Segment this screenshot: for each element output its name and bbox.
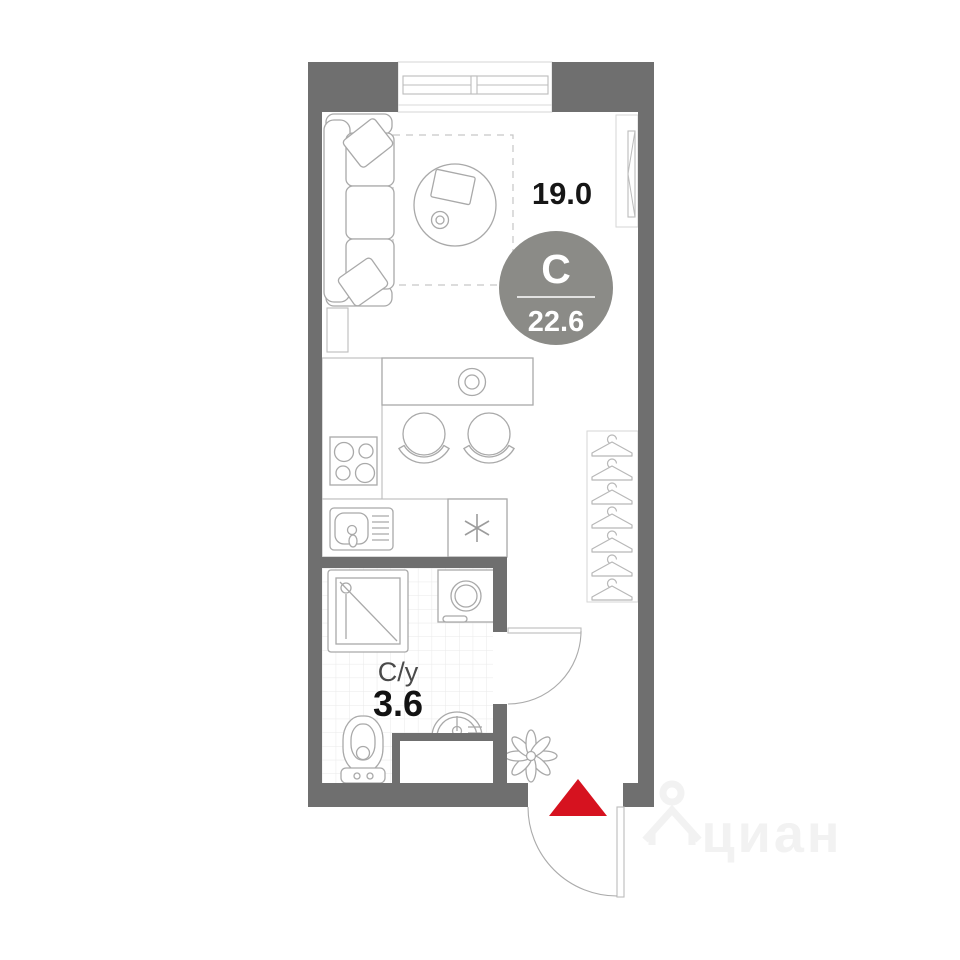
washing-machine-icon bbox=[438, 570, 495, 622]
entrance-door bbox=[528, 807, 624, 897]
wall-panel-icon bbox=[616, 115, 638, 227]
apartment-type-letter: С bbox=[541, 246, 571, 292]
floorplan-canvas: 19.0 С 22.6 С/у 3.6 циан bbox=[0, 0, 960, 960]
watermark-text: циан bbox=[701, 804, 842, 864]
round-table-icon bbox=[414, 164, 496, 246]
cabinet-icon bbox=[327, 308, 348, 352]
bathroom-door bbox=[508, 628, 581, 704]
toilet-icon bbox=[341, 716, 385, 783]
shower-icon bbox=[328, 570, 408, 652]
bar-table-icon bbox=[382, 358, 533, 405]
kitchen-sink-icon bbox=[330, 508, 393, 550]
wardrobe-icon bbox=[587, 431, 638, 602]
sofa-icon bbox=[324, 114, 394, 307]
bar-stool-icon bbox=[464, 413, 514, 463]
vent-shaft bbox=[400, 741, 493, 783]
stove-icon bbox=[330, 437, 377, 485]
apartment-type-badge: С 22.6 bbox=[499, 231, 613, 345]
fridge-icon bbox=[448, 499, 507, 557]
bar-stool-icon bbox=[399, 413, 449, 463]
watermark: циан bbox=[645, 784, 843, 864]
total-area-label: 22.6 bbox=[528, 306, 584, 338]
floorplan-drawing: 19.0 С 22.6 С/у 3.6 циан bbox=[0, 0, 960, 960]
window-icon bbox=[403, 76, 548, 94]
plant-icon bbox=[505, 730, 557, 782]
living-area-label: 19.0 bbox=[532, 176, 592, 211]
bathroom-area-label: 3.6 bbox=[373, 683, 423, 724]
entrance-arrow-icon bbox=[549, 779, 607, 816]
